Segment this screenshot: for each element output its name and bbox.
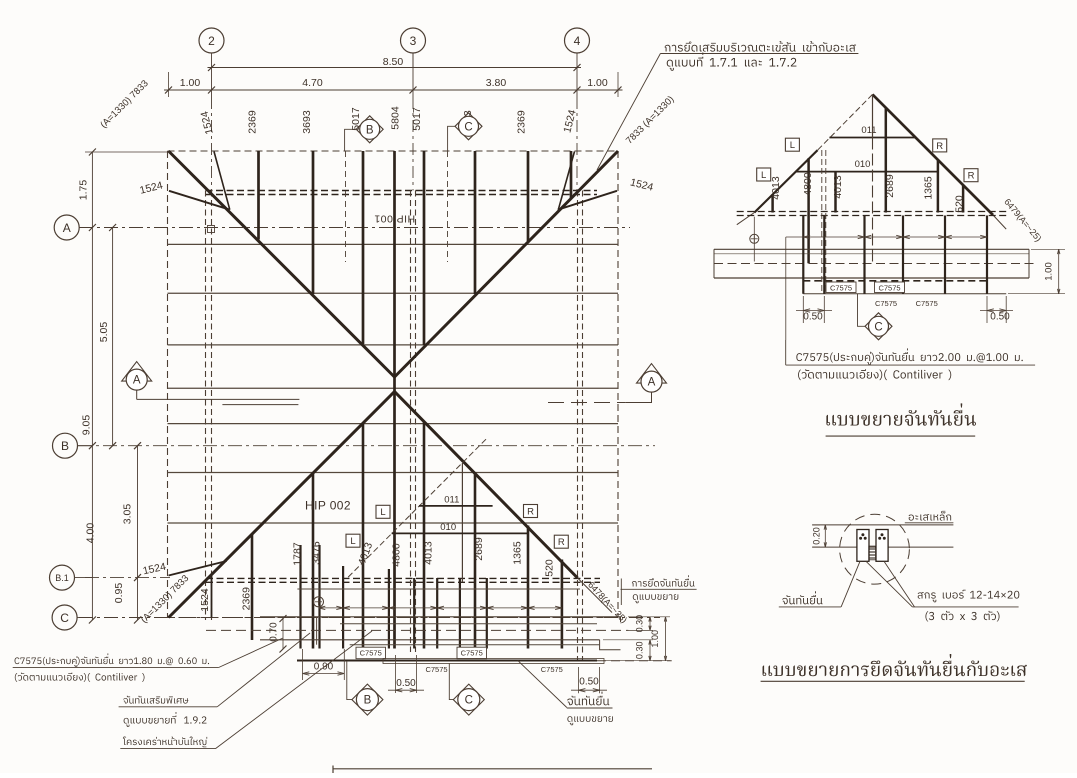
svg-text:0.30: 0.30 — [635, 615, 645, 633]
svg-text:0.50: 0.50 — [579, 677, 599, 688]
svg-text:C7575: C7575 — [425, 665, 447, 674]
svg-text:1524: 1524 — [199, 588, 211, 612]
svg-text:R: R — [936, 141, 943, 152]
svg-text:B: B — [364, 695, 372, 707]
svg-text:C7575: C7575 — [830, 283, 852, 292]
svg-text:5804: 5804 — [390, 106, 402, 130]
svg-text:R: R — [558, 537, 565, 548]
svg-text:1365: 1365 — [512, 541, 524, 565]
svg-text:8.50: 8.50 — [383, 56, 404, 68]
svg-text:4013: 4013 — [423, 541, 435, 565]
svg-text:010: 010 — [855, 159, 871, 170]
svg-text:A: A — [63, 221, 71, 235]
svg-text:3: 3 — [410, 34, 417, 48]
svg-text:C7575: C7575 — [360, 649, 382, 658]
svg-text:0.30: 0.30 — [635, 642, 645, 660]
svg-text:R: R — [527, 506, 534, 517]
svg-text:1.00: 1.00 — [180, 77, 201, 89]
svg-text:C7575: C7575 — [916, 299, 938, 308]
svg-text:R: R — [968, 171, 975, 182]
svg-text:520: 520 — [953, 195, 965, 213]
svg-text:C: C — [464, 121, 472, 133]
svg-text:B.1: B.1 — [55, 573, 69, 583]
svg-text:2369: 2369 — [516, 110, 528, 134]
svg-text:1.00: 1.00 — [587, 77, 608, 89]
svg-text:B: B — [61, 439, 69, 453]
svg-text:1.75: 1.75 — [78, 180, 90, 201]
svg-text:2369: 2369 — [241, 587, 253, 611]
svg-text:2689: 2689 — [884, 174, 896, 198]
svg-text:HIP 002: HIP 002 — [305, 499, 351, 513]
svg-text:011: 011 — [861, 125, 876, 136]
svg-text:4800: 4800 — [802, 172, 814, 196]
svg-text:9.05: 9.05 — [81, 415, 93, 436]
svg-text:3.05: 3.05 — [122, 504, 134, 525]
svg-text:2369: 2369 — [247, 110, 259, 134]
svg-text:4.70: 4.70 — [302, 77, 323, 89]
svg-text:0.50: 0.50 — [803, 312, 823, 323]
svg-text:010: 010 — [440, 522, 456, 533]
svg-text:1365: 1365 — [922, 176, 934, 200]
svg-text:C7575: C7575 — [541, 665, 563, 674]
svg-text:C7575: C7575 — [878, 283, 900, 292]
svg-text:4013: 4013 — [832, 175, 844, 199]
svg-text:C7575: C7575 — [875, 299, 897, 308]
svg-text:A: A — [648, 377, 656, 389]
svg-text:4013: 4013 — [770, 176, 782, 200]
svg-text:L: L — [761, 170, 766, 181]
svg-text:5017: 5017 — [411, 107, 423, 131]
svg-text:L: L — [380, 507, 385, 518]
svg-text:C: C — [874, 321, 882, 333]
svg-text:1.00: 1.00 — [650, 630, 660, 648]
svg-text:3.80: 3.80 — [486, 77, 507, 89]
svg-text:L: L — [350, 536, 355, 547]
svg-text:A: A — [133, 375, 141, 387]
svg-text:2689: 2689 — [473, 537, 485, 561]
svg-text:520: 520 — [543, 559, 555, 577]
svg-text:2: 2 — [208, 34, 215, 48]
svg-text:0.20: 0.20 — [812, 527, 822, 545]
svg-text:3476: 3476 — [311, 541, 323, 565]
svg-text:HIP 001: HIP 001 — [374, 212, 415, 224]
svg-text:0.50: 0.50 — [396, 678, 416, 689]
svg-text:3693: 3693 — [301, 110, 313, 134]
svg-text:B: B — [366, 124, 374, 136]
svg-text:1.00: 1.00 — [1044, 262, 1055, 281]
svg-text:4800: 4800 — [390, 543, 402, 567]
svg-text:L: L — [790, 140, 795, 151]
svg-text:4.00: 4.00 — [85, 523, 97, 544]
svg-text:C7575: C7575 — [461, 649, 483, 658]
svg-text:1787: 1787 — [292, 542, 304, 566]
svg-text:0.70: 0.70 — [269, 622, 280, 642]
svg-text:011: 011 — [444, 495, 459, 506]
svg-text:4: 4 — [574, 34, 581, 48]
svg-text:5.05: 5.05 — [98, 322, 110, 343]
svg-text:C: C — [60, 611, 69, 625]
svg-text:0.50: 0.50 — [990, 312, 1010, 323]
svg-text:C: C — [465, 695, 473, 707]
svg-text:0.95: 0.95 — [113, 583, 125, 604]
